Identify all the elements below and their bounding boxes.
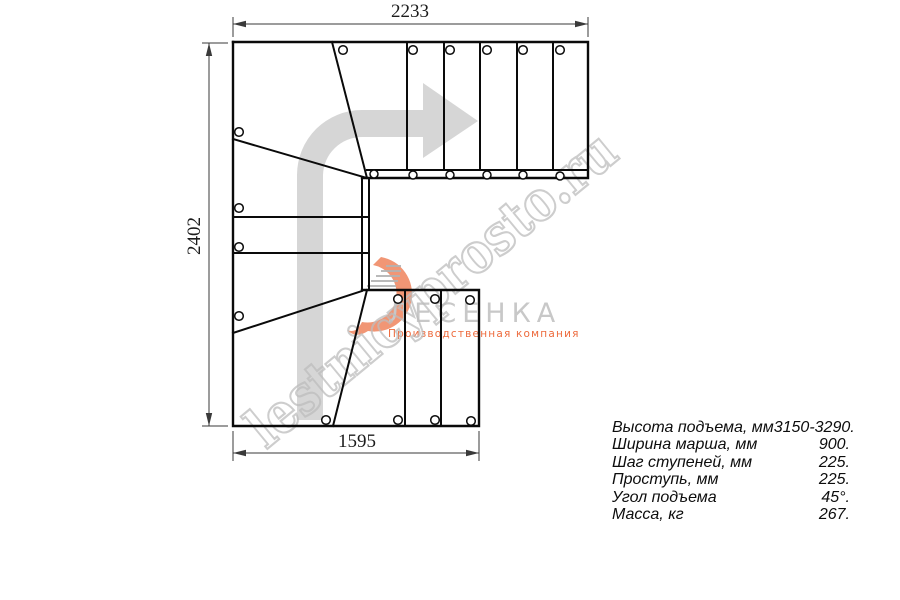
spec-label: Шаг ступеней, мм	[612, 454, 752, 471]
spec-label: Ширина марша, мм	[612, 436, 757, 453]
spec-label: Угол подъема	[612, 489, 717, 506]
spec-row: Шаг ступеней, мм 225.	[612, 454, 850, 471]
spec-value: 225.	[819, 471, 850, 488]
spec-label: Проступь, мм	[612, 471, 718, 488]
spec-label: Масса, кг	[612, 506, 684, 523]
watermark-text: lestnicyprosto.ru	[233, 117, 629, 460]
dimension-top: 2233	[233, 1, 588, 37]
dimension-bottom-value: 1595	[338, 431, 376, 452]
spec-value: 3150-3290.	[774, 419, 855, 436]
spec-row: Масса, кг 267.	[612, 506, 850, 523]
specs-table: Высота подъема, мм 3150-3290. Ширина мар…	[612, 419, 850, 523]
spec-value: 267.	[819, 506, 850, 523]
dimension-left-value: 2402	[184, 217, 205, 255]
spec-row: Ширина марша, мм 900.	[612, 436, 850, 453]
spec-row: Высота подъема, мм 3150-3290.	[612, 419, 850, 436]
dimension-top-value: 2233	[391, 1, 429, 22]
spec-value: 900.	[819, 436, 850, 453]
spec-value: 45°.	[821, 489, 850, 506]
stair-drawing-page: ЛЕСЕНКА Производственная компания lestni…	[0, 0, 900, 600]
spec-label: Высота подъема, мм	[612, 419, 774, 436]
spec-value: 225.	[819, 454, 850, 471]
dimension-left: 2402	[184, 43, 228, 426]
spec-row: Угол подъема 45°.	[612, 489, 850, 506]
spec-row: Проступь, мм 225.	[612, 471, 850, 488]
